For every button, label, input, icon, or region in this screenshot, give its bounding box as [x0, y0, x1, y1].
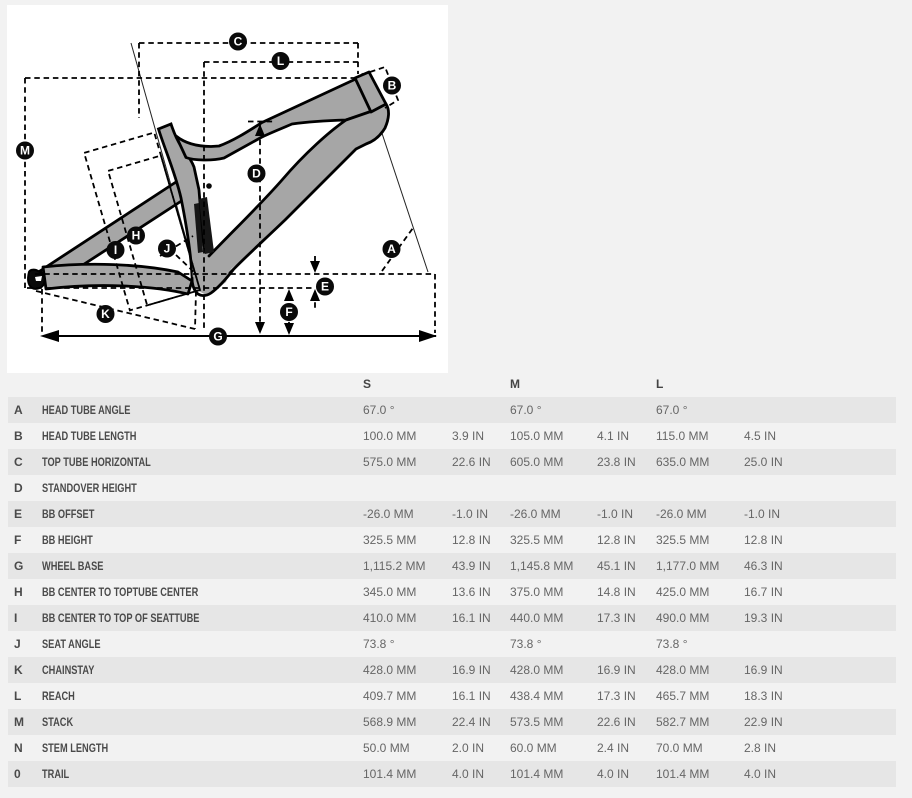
svg-text:D: D — [252, 167, 261, 181]
svg-text:K: K — [101, 307, 110, 321]
svg-text:B: B — [388, 79, 397, 93]
svg-text:J: J — [164, 242, 171, 256]
svg-text:F: F — [285, 305, 292, 319]
svg-text:I: I — [114, 243, 117, 257]
svg-text:L: L — [277, 54, 284, 68]
svg-text:G: G — [213, 330, 222, 344]
svg-text:M: M — [20, 144, 30, 158]
svg-text:A: A — [387, 242, 396, 256]
svg-text:E: E — [321, 280, 329, 294]
svg-text:H: H — [132, 229, 141, 243]
svg-text:C: C — [234, 35, 243, 49]
